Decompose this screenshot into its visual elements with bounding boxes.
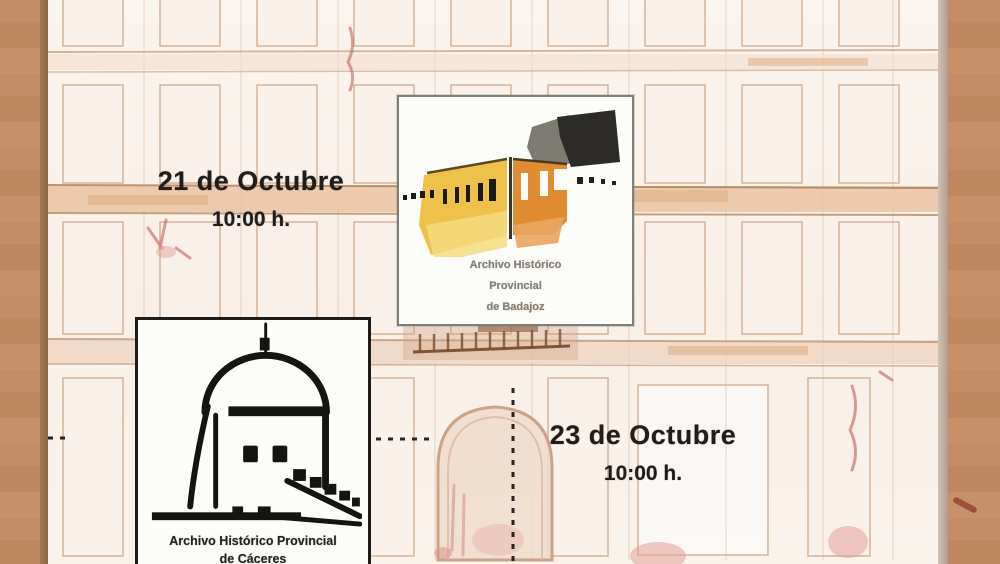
- event-block-2: 23 de Octubre 10:00 h.: [518, 420, 768, 486]
- event-2-date: 23 de Octubre: [518, 420, 768, 451]
- archive-logo-caption-color: Archivo Histórico Provincial de Badajoz: [399, 255, 632, 318]
- kraft-board-right: [948, 0, 1000, 564]
- event-2-time: 10:00 h.: [518, 462, 768, 486]
- archivo-historico-provincial-caceres-logo-icon: [138, 322, 362, 528]
- poster-photo: 21 de Octubre 10:00 h. 23 de Octubre 10:…: [0, 0, 1000, 564]
- kraft-board-left: [0, 0, 40, 564]
- archive-logo-caption-bw: Archivo Histórico Provincial de Cáceres: [138, 532, 368, 564]
- balcony-sketch: [403, 322, 578, 360]
- event-1-date: 21 de Octubre: [136, 166, 366, 197]
- red-pencil-mark: [952, 496, 978, 514]
- archive-logo-card-bw: Archivo Histórico Provincial de Cáceres: [135, 317, 371, 564]
- poster-sheet: 21 de Octubre 10:00 h. 23 de Octubre 10:…: [48, 0, 938, 564]
- archive-logo-card-color: Archivo Histórico Provincial de Badajoz: [397, 95, 634, 326]
- archivo-historico-provincial-badajoz-logo-icon: [399, 107, 632, 257]
- event-1-time: 10:00 h.: [136, 208, 366, 232]
- event-block-1: 21 de Octubre 10:00 h.: [136, 166, 366, 232]
